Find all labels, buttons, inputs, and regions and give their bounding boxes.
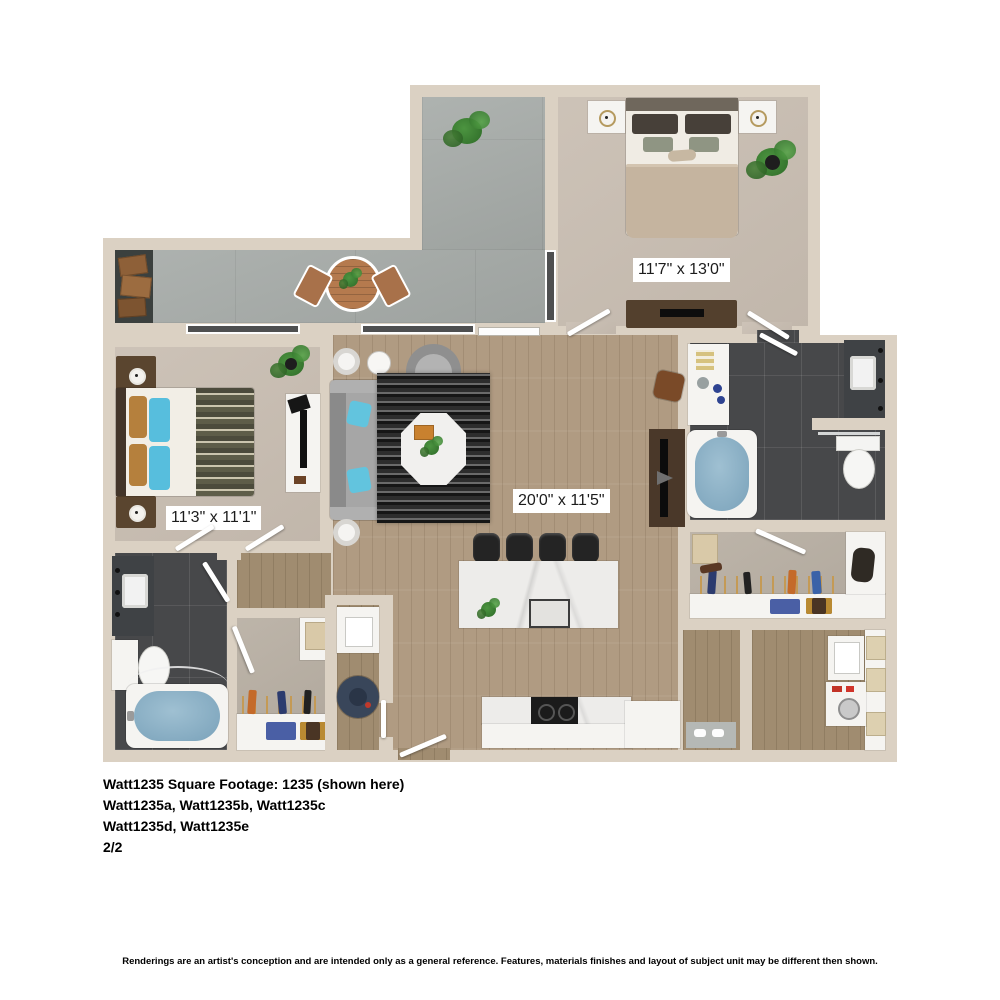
bar-stool xyxy=(473,533,500,563)
hanging-clothes xyxy=(242,696,326,714)
towel-roll xyxy=(697,377,709,389)
entry-mat xyxy=(686,722,736,748)
storage-box xyxy=(117,297,146,318)
round-washer xyxy=(337,676,379,718)
lamp-icon xyxy=(129,505,146,522)
nook-wall xyxy=(325,595,337,753)
towel-stack xyxy=(696,350,714,370)
bar-stool xyxy=(539,533,566,563)
garment-bag xyxy=(850,547,875,583)
washer-dial xyxy=(838,698,860,720)
sink-basin xyxy=(345,617,373,647)
throw-pillow-blue xyxy=(346,466,372,493)
detergent-bottle xyxy=(846,686,854,692)
faucet-knob xyxy=(115,568,120,573)
bed-queen xyxy=(626,98,738,235)
vanity-sink xyxy=(850,356,876,390)
garment xyxy=(743,572,752,595)
plan-unit-list-2: Watt1235d, Watt1235e xyxy=(103,816,404,837)
window xyxy=(361,324,475,334)
washer-top xyxy=(828,636,864,680)
tv-icon xyxy=(660,309,704,317)
lamp-icon xyxy=(599,110,616,127)
folded-clothes xyxy=(770,599,800,614)
laundry-basket xyxy=(866,668,886,692)
nightstand xyxy=(116,496,156,528)
nook-wall xyxy=(379,595,393,703)
desk-chair xyxy=(652,369,685,402)
pillow-accent xyxy=(643,137,673,152)
magazines xyxy=(414,425,434,440)
island-sink xyxy=(529,599,570,628)
burner-icon xyxy=(558,704,575,721)
bath2-vanity xyxy=(112,556,154,636)
pillow-blue xyxy=(149,398,170,442)
living-room-dimensions: 20'0" x 11'5" xyxy=(513,489,610,513)
storage-box xyxy=(120,274,152,298)
laundry-basket xyxy=(866,712,886,736)
kitchen-counter-corner xyxy=(625,701,680,748)
suitcase xyxy=(806,598,832,614)
window xyxy=(186,324,300,334)
folded-clothes xyxy=(266,722,296,740)
floor-plan-page: 11'7" x 13'0" 11'3" x 11'1" xyxy=(0,0,1000,1000)
tub-faucet-icon xyxy=(717,431,727,437)
nightstand xyxy=(588,101,625,133)
nightstand xyxy=(739,101,776,133)
wall-stub xyxy=(217,541,241,560)
toilet xyxy=(843,449,875,489)
patterned-blanket xyxy=(196,388,254,496)
duvet xyxy=(626,164,738,238)
nook-door-leaf xyxy=(381,700,386,738)
garment xyxy=(303,690,311,714)
media-console xyxy=(286,394,320,492)
faucet-knob xyxy=(878,378,883,383)
bathtub xyxy=(126,684,228,748)
island-plant xyxy=(481,602,496,617)
plant-pot xyxy=(285,358,297,370)
stove-cooktop xyxy=(531,697,578,724)
plant-pot xyxy=(765,155,780,170)
jar-blue xyxy=(717,396,725,404)
pillow-tan xyxy=(129,444,147,486)
garment xyxy=(787,570,796,594)
wall-stub xyxy=(812,418,885,430)
utility-sink xyxy=(337,607,379,653)
faucet-knob xyxy=(878,406,883,411)
bar-stool xyxy=(506,533,533,563)
plan-info-block: Watt1235 Square Footage: 1235 (shown her… xyxy=(103,774,404,858)
bedroom1-dimensions: 11'7" x 13'0" xyxy=(633,258,730,282)
storage-basket xyxy=(692,534,718,564)
hanging-clothes xyxy=(700,576,840,594)
coffee-table-plant xyxy=(424,440,439,455)
garment xyxy=(247,690,257,714)
floor-lamp xyxy=(367,351,391,375)
washer-lid xyxy=(834,642,860,674)
bedroom1-window xyxy=(545,250,556,322)
pillow xyxy=(632,114,678,134)
laundry-basket xyxy=(866,636,886,660)
nook-wall xyxy=(379,737,393,753)
detergent-cap xyxy=(365,702,371,708)
tv-console xyxy=(649,429,685,527)
balcony-plant xyxy=(452,118,482,144)
jar-blue xyxy=(713,384,722,393)
garment xyxy=(811,571,822,595)
towel-bar xyxy=(818,432,880,435)
headboard xyxy=(626,98,738,111)
bath-vanity xyxy=(844,340,885,422)
pillow-tan xyxy=(129,396,147,438)
bathtub-basin xyxy=(695,437,749,511)
bath-shelving xyxy=(688,344,729,425)
storage-box xyxy=(118,254,148,277)
plan-unit-list-1: Watt1235a, Watt1235b, Watt1235c xyxy=(103,795,404,816)
speaker-icon xyxy=(287,394,310,413)
side-table xyxy=(333,348,360,375)
slipper xyxy=(694,729,706,737)
tv-icon xyxy=(300,410,307,468)
faucet-knob xyxy=(115,590,120,595)
kitchen-cabinets xyxy=(482,724,631,748)
pillow-blue xyxy=(149,446,170,490)
tub-faucet-icon xyxy=(127,711,134,721)
throw-pillow-blue xyxy=(346,400,373,428)
lumbar-pillow xyxy=(668,149,697,162)
washer-front xyxy=(826,682,866,726)
plan-square-footage: Watt1235 Square Footage: 1235 (shown her… xyxy=(103,774,404,795)
slipper xyxy=(712,729,724,737)
sliding-door xyxy=(478,327,540,336)
suitcase xyxy=(300,722,326,740)
faucet-knob xyxy=(878,348,883,353)
bathtub-basin xyxy=(134,691,220,741)
hall2-floor xyxy=(237,553,331,608)
pillow xyxy=(685,114,731,134)
burner-icon xyxy=(538,704,555,721)
decor-item xyxy=(294,476,306,484)
dresser-tv xyxy=(626,300,737,328)
side-table xyxy=(333,519,360,546)
faucet-knob xyxy=(115,612,120,617)
headboard xyxy=(116,388,126,496)
vanity-sink xyxy=(122,574,148,608)
lamp-icon xyxy=(129,368,146,385)
bathtub xyxy=(687,430,757,518)
bed-queen xyxy=(116,388,254,496)
detergent-bottle xyxy=(832,686,842,692)
bar-stool xyxy=(572,533,599,563)
garment xyxy=(707,570,717,594)
patio-table-plant xyxy=(343,272,358,287)
plan-page-indicator: 2/2 xyxy=(103,837,404,858)
lamp-icon xyxy=(750,110,767,127)
disclaimer-text: Renderings are an artist's conception an… xyxy=(0,956,1000,967)
